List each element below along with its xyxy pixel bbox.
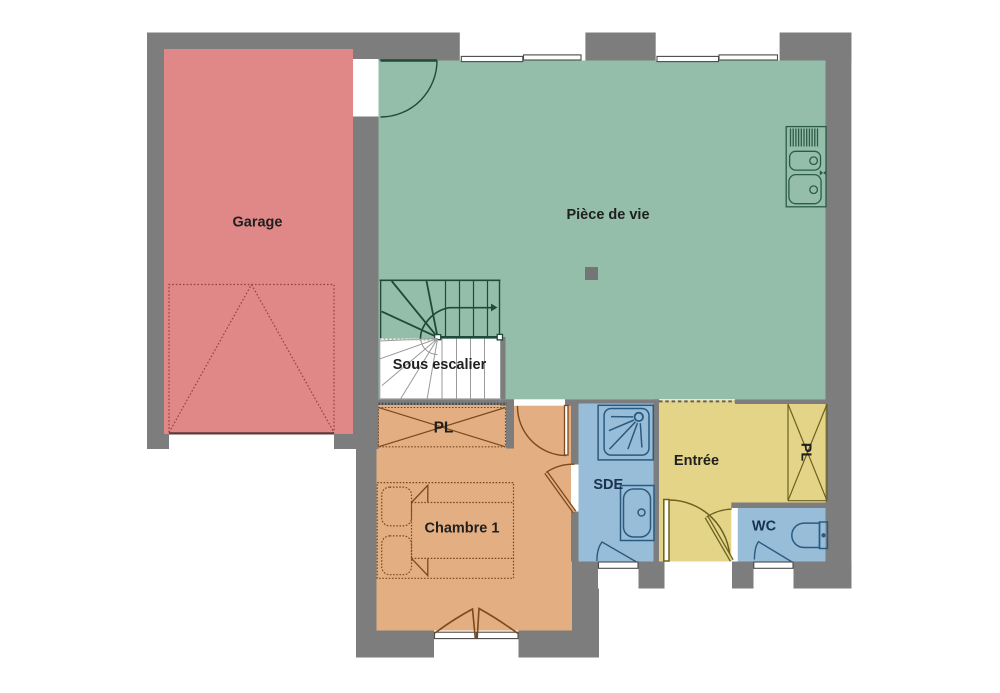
svg-text:PL: PL	[434, 420, 454, 437]
svg-text:Sous escalier: Sous escalier	[393, 357, 487, 373]
svg-text:Entrée: Entrée	[674, 453, 719, 469]
svg-text:Chambre 1: Chambre 1	[425, 521, 500, 537]
svg-text:WC: WC	[752, 519, 777, 535]
svg-text:SDE: SDE	[593, 477, 623, 493]
svg-text:PL: PL	[798, 443, 814, 462]
svg-text:Pièce de vie: Pièce de vie	[566, 207, 649, 223]
svg-text:Garage: Garage	[233, 215, 283, 231]
